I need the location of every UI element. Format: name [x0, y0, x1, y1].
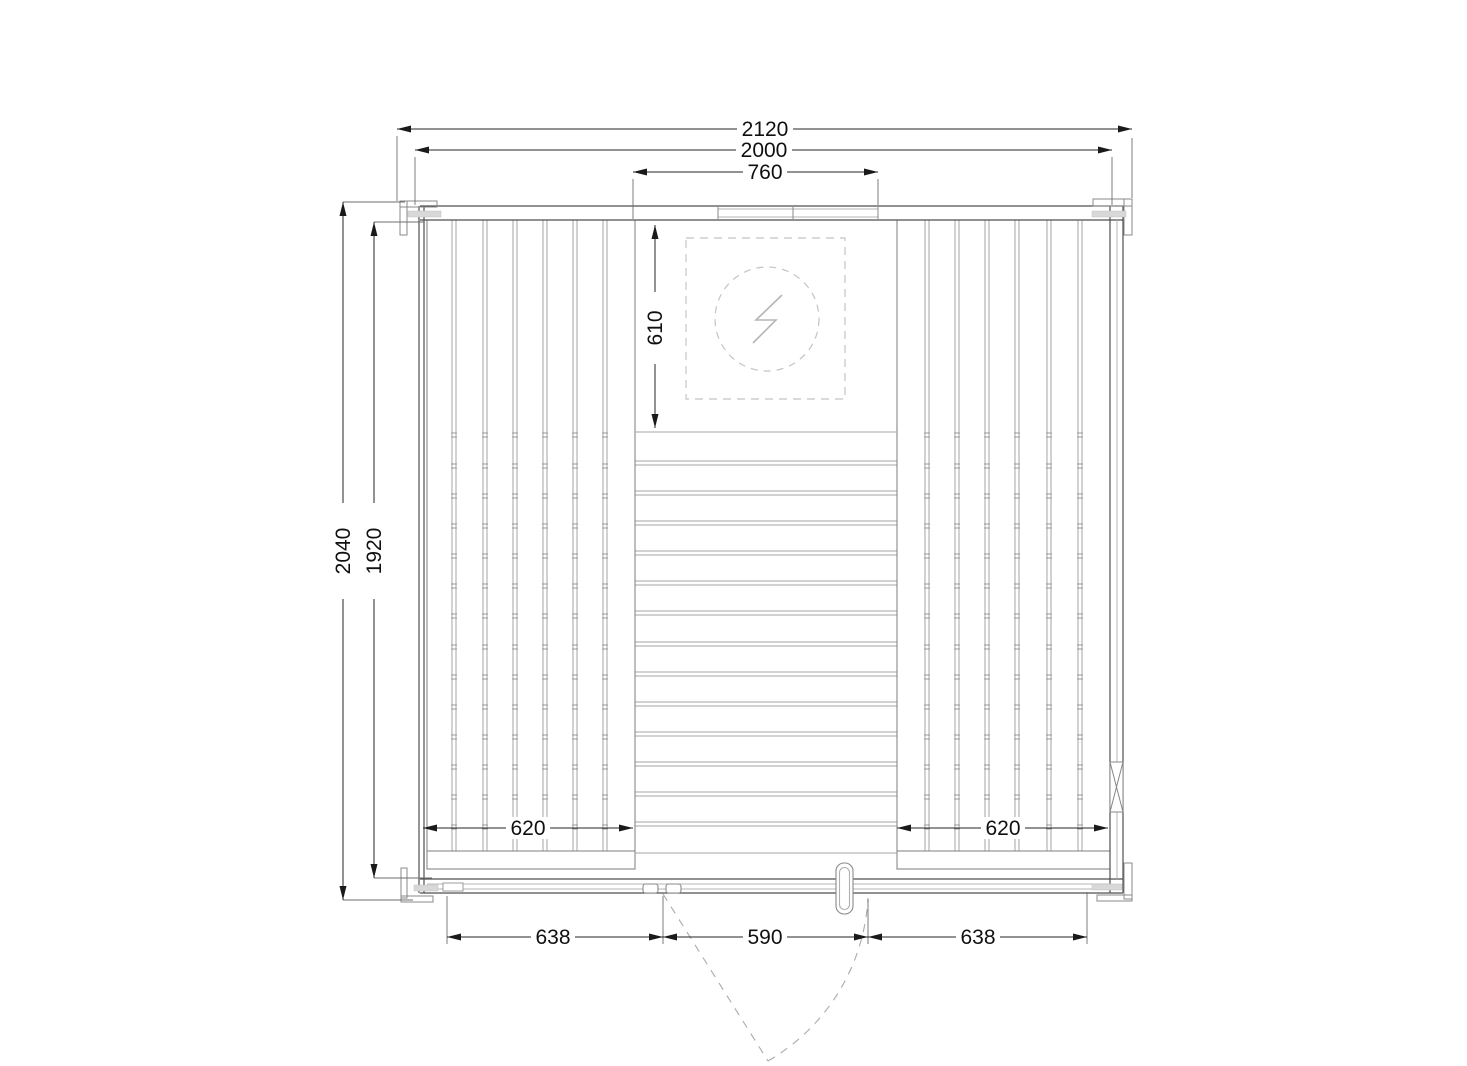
dim-overall-depth: 2040 — [332, 202, 355, 900]
floor-boards — [635, 461, 897, 826]
dim-front-right-panel-label: 638 — [960, 926, 995, 949]
dim-left-bench-width-label: 620 — [510, 817, 545, 840]
slat-joint-ticks — [451, 433, 1083, 829]
door-swing — [663, 894, 868, 1061]
dim-front-left-panel-label: 638 — [535, 926, 570, 949]
wall-vent-marker — [1110, 762, 1123, 812]
dim-frame-width: 2000 — [415, 139, 1112, 162]
panel-tab-top-right — [1092, 211, 1126, 217]
right-bench-front-band — [897, 851, 1110, 869]
dim-overall-width: 2120 — [397, 117, 1132, 141]
heater-circle-dashed — [715, 267, 819, 371]
left-bench — [427, 220, 635, 869]
panel-tab-bottom-left — [414, 885, 438, 891]
bottom-wall-track — [427, 883, 1110, 891]
wall-detail-lines — [718, 209, 1117, 879]
left-bench-slats — [452, 220, 607, 851]
dim-left-bench-width: 620 — [423, 817, 633, 840]
dim-front-chain: 638 590 638 — [447, 926, 1087, 949]
dim-inner-depth: 1920 — [363, 222, 386, 878]
walls — [419, 206, 1123, 893]
track-end-cap — [443, 883, 463, 891]
left-bench-front-band — [427, 851, 635, 869]
dim-right-bench-width-label: 620 — [985, 817, 1020, 840]
sauna-floor-plan: 2120 2000 760 2040 1920 — [0, 0, 1467, 1066]
dim-heater-zone-depth-label: 610 — [644, 310, 667, 345]
door-leaf-open-position — [663, 894, 768, 1061]
door-handle — [836, 863, 853, 914]
hinge-leaf-left — [643, 884, 658, 893]
dim-heater-zone-depth: 610 — [644, 225, 667, 428]
dim-frame-width-label: 2000 — [741, 139, 788, 162]
dim-heater-bay-width: 760 — [633, 161, 878, 184]
hinge-leaf-right — [666, 884, 681, 893]
heater-symbol — [686, 238, 845, 399]
dim-overall-width-label: 2120 — [742, 118, 789, 141]
panel-tab-bottom-right — [1092, 884, 1122, 890]
door-swing-arc — [768, 898, 868, 1061]
lightning-bolt-icon — [753, 295, 782, 343]
dim-inner-depth-label: 1920 — [363, 528, 386, 575]
handle-inner — [840, 868, 850, 910]
dim-heater-bay-width-label: 760 — [747, 161, 782, 184]
dim-overall-depth-label: 2040 — [332, 528, 355, 575]
heater-footprint-dashed — [686, 238, 845, 399]
dim-door-opening-width-label: 590 — [747, 926, 782, 949]
panel-tab-top-left — [408, 211, 441, 217]
drawing-canvas: 2120 2000 760 2040 1920 — [0, 0, 1467, 1066]
right-bench-slats — [925, 220, 1082, 851]
